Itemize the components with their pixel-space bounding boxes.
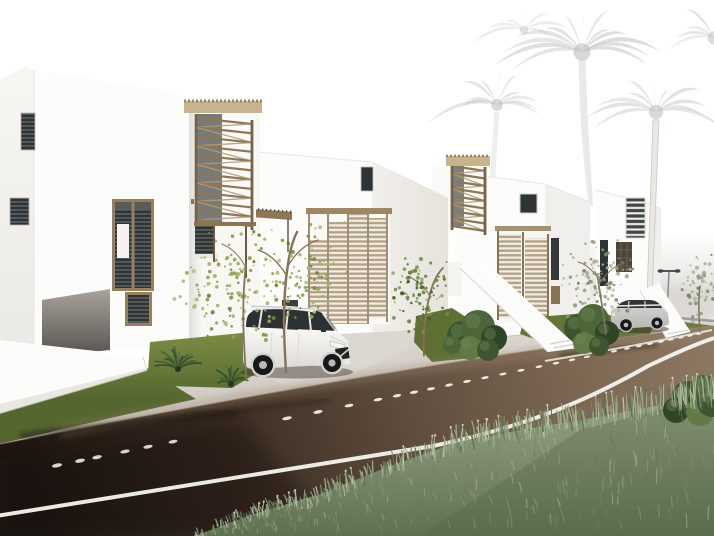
house-3-wood-panel — [551, 286, 560, 304]
house-2-window-small — [361, 167, 373, 191]
house-1-window-main — [112, 199, 154, 291]
house-1 — [0, 66, 292, 357]
architectural-rendering: Architectural rendering: row of white mo… — [0, 0, 714, 536]
house-3-strip-window — [551, 238, 559, 280]
white-blind — [117, 224, 129, 258]
house-1-window-left-a — [21, 113, 35, 150]
thatch-roof — [446, 156, 490, 166]
house-3-window-small — [520, 194, 537, 213]
house-1-window-left-b — [10, 198, 29, 225]
thatch-roof — [184, 101, 262, 113]
house-3-corner-screen — [446, 156, 490, 235]
house-1-window-lower — [125, 292, 152, 326]
house-1-corner-screen — [184, 101, 262, 230]
house-4-louver-window — [626, 198, 645, 238]
